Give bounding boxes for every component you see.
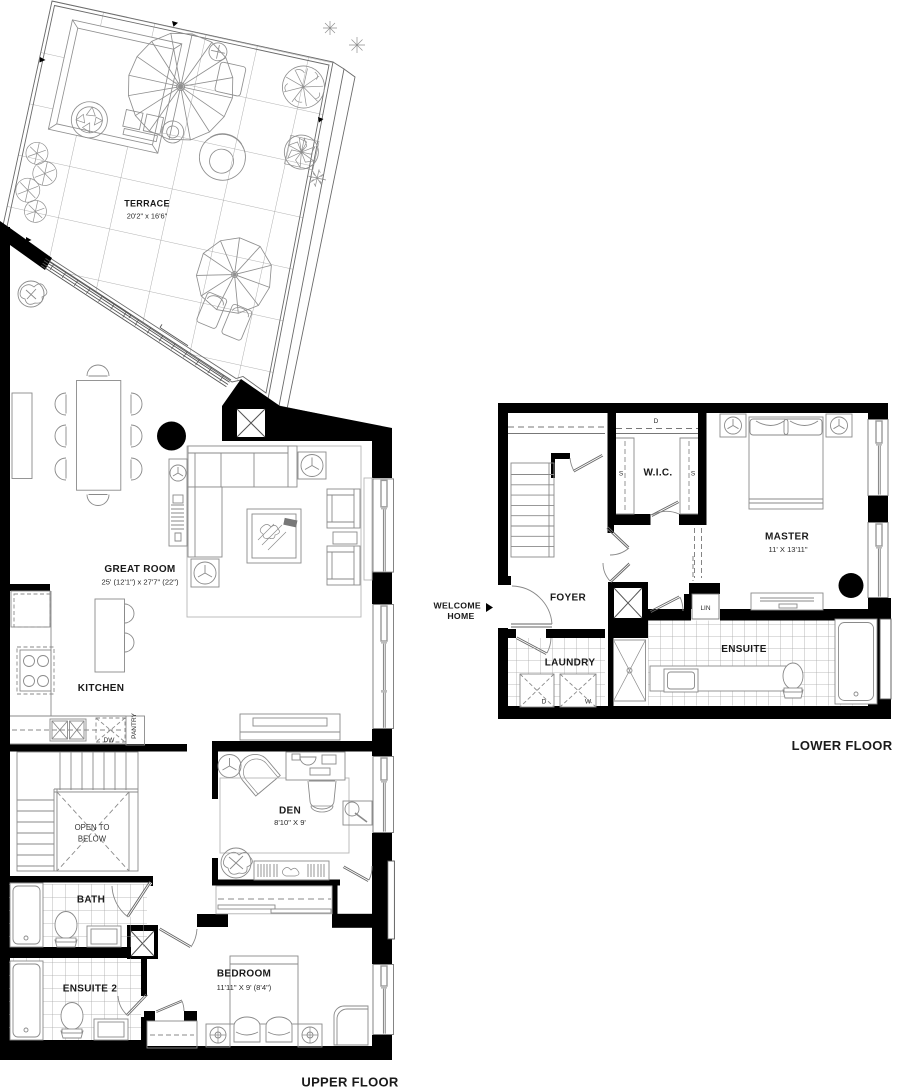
- svg-text:BELOW: BELOW: [78, 835, 107, 844]
- svg-text:FOYER: FOYER: [550, 593, 586, 604]
- svg-text:S: S: [619, 471, 624, 478]
- svg-text:S: S: [691, 471, 696, 478]
- svg-text:8'10" X 9': 8'10" X 9': [274, 818, 306, 827]
- svg-text:20'2" x 16'6": 20'2" x 16'6": [127, 212, 168, 221]
- svg-text:ENSUITE: ENSUITE: [721, 644, 766, 655]
- svg-text:MASTER: MASTER: [765, 532, 809, 543]
- svg-text:BEDROOM: BEDROOM: [217, 969, 271, 980]
- svg-text:W.I.C.: W.I.C.: [643, 468, 672, 479]
- svg-text:LOWER FLOOR: LOWER FLOOR: [792, 738, 893, 753]
- svg-text:LAUNDRY: LAUNDRY: [545, 658, 596, 669]
- svg-text:DEN: DEN: [279, 806, 301, 817]
- svg-text:D: D: [654, 418, 659, 425]
- svg-text:25' (12'1") x 27'7" (22"): 25' (12'1") x 27'7" (22"): [101, 578, 178, 587]
- svg-text:BATH: BATH: [77, 895, 105, 906]
- svg-text:PANTRY: PANTRY: [131, 712, 138, 738]
- svg-text:LIN: LIN: [700, 605, 710, 612]
- svg-text:HOME: HOME: [447, 611, 474, 621]
- svg-text:ENSUITE 2: ENSUITE 2: [63, 984, 118, 995]
- svg-text:UPPER FLOOR: UPPER FLOOR: [301, 1075, 399, 1090]
- svg-text:KITCHEN: KITCHEN: [78, 683, 125, 694]
- svg-text:D: D: [542, 699, 547, 706]
- svg-text:11'11" X 9' (8'4"): 11'11" X 9' (8'4"): [217, 983, 272, 992]
- svg-text:OPEN TO: OPEN TO: [75, 823, 110, 832]
- svg-text:TERRACE: TERRACE: [124, 199, 170, 209]
- svg-text:WELCOME: WELCOME: [434, 601, 481, 611]
- svg-text:DW: DW: [104, 737, 116, 744]
- svg-text:GREAT ROOM: GREAT ROOM: [104, 564, 175, 575]
- svg-text:11' X 13'11": 11' X 13'11": [768, 545, 807, 554]
- svg-text:W: W: [585, 699, 592, 706]
